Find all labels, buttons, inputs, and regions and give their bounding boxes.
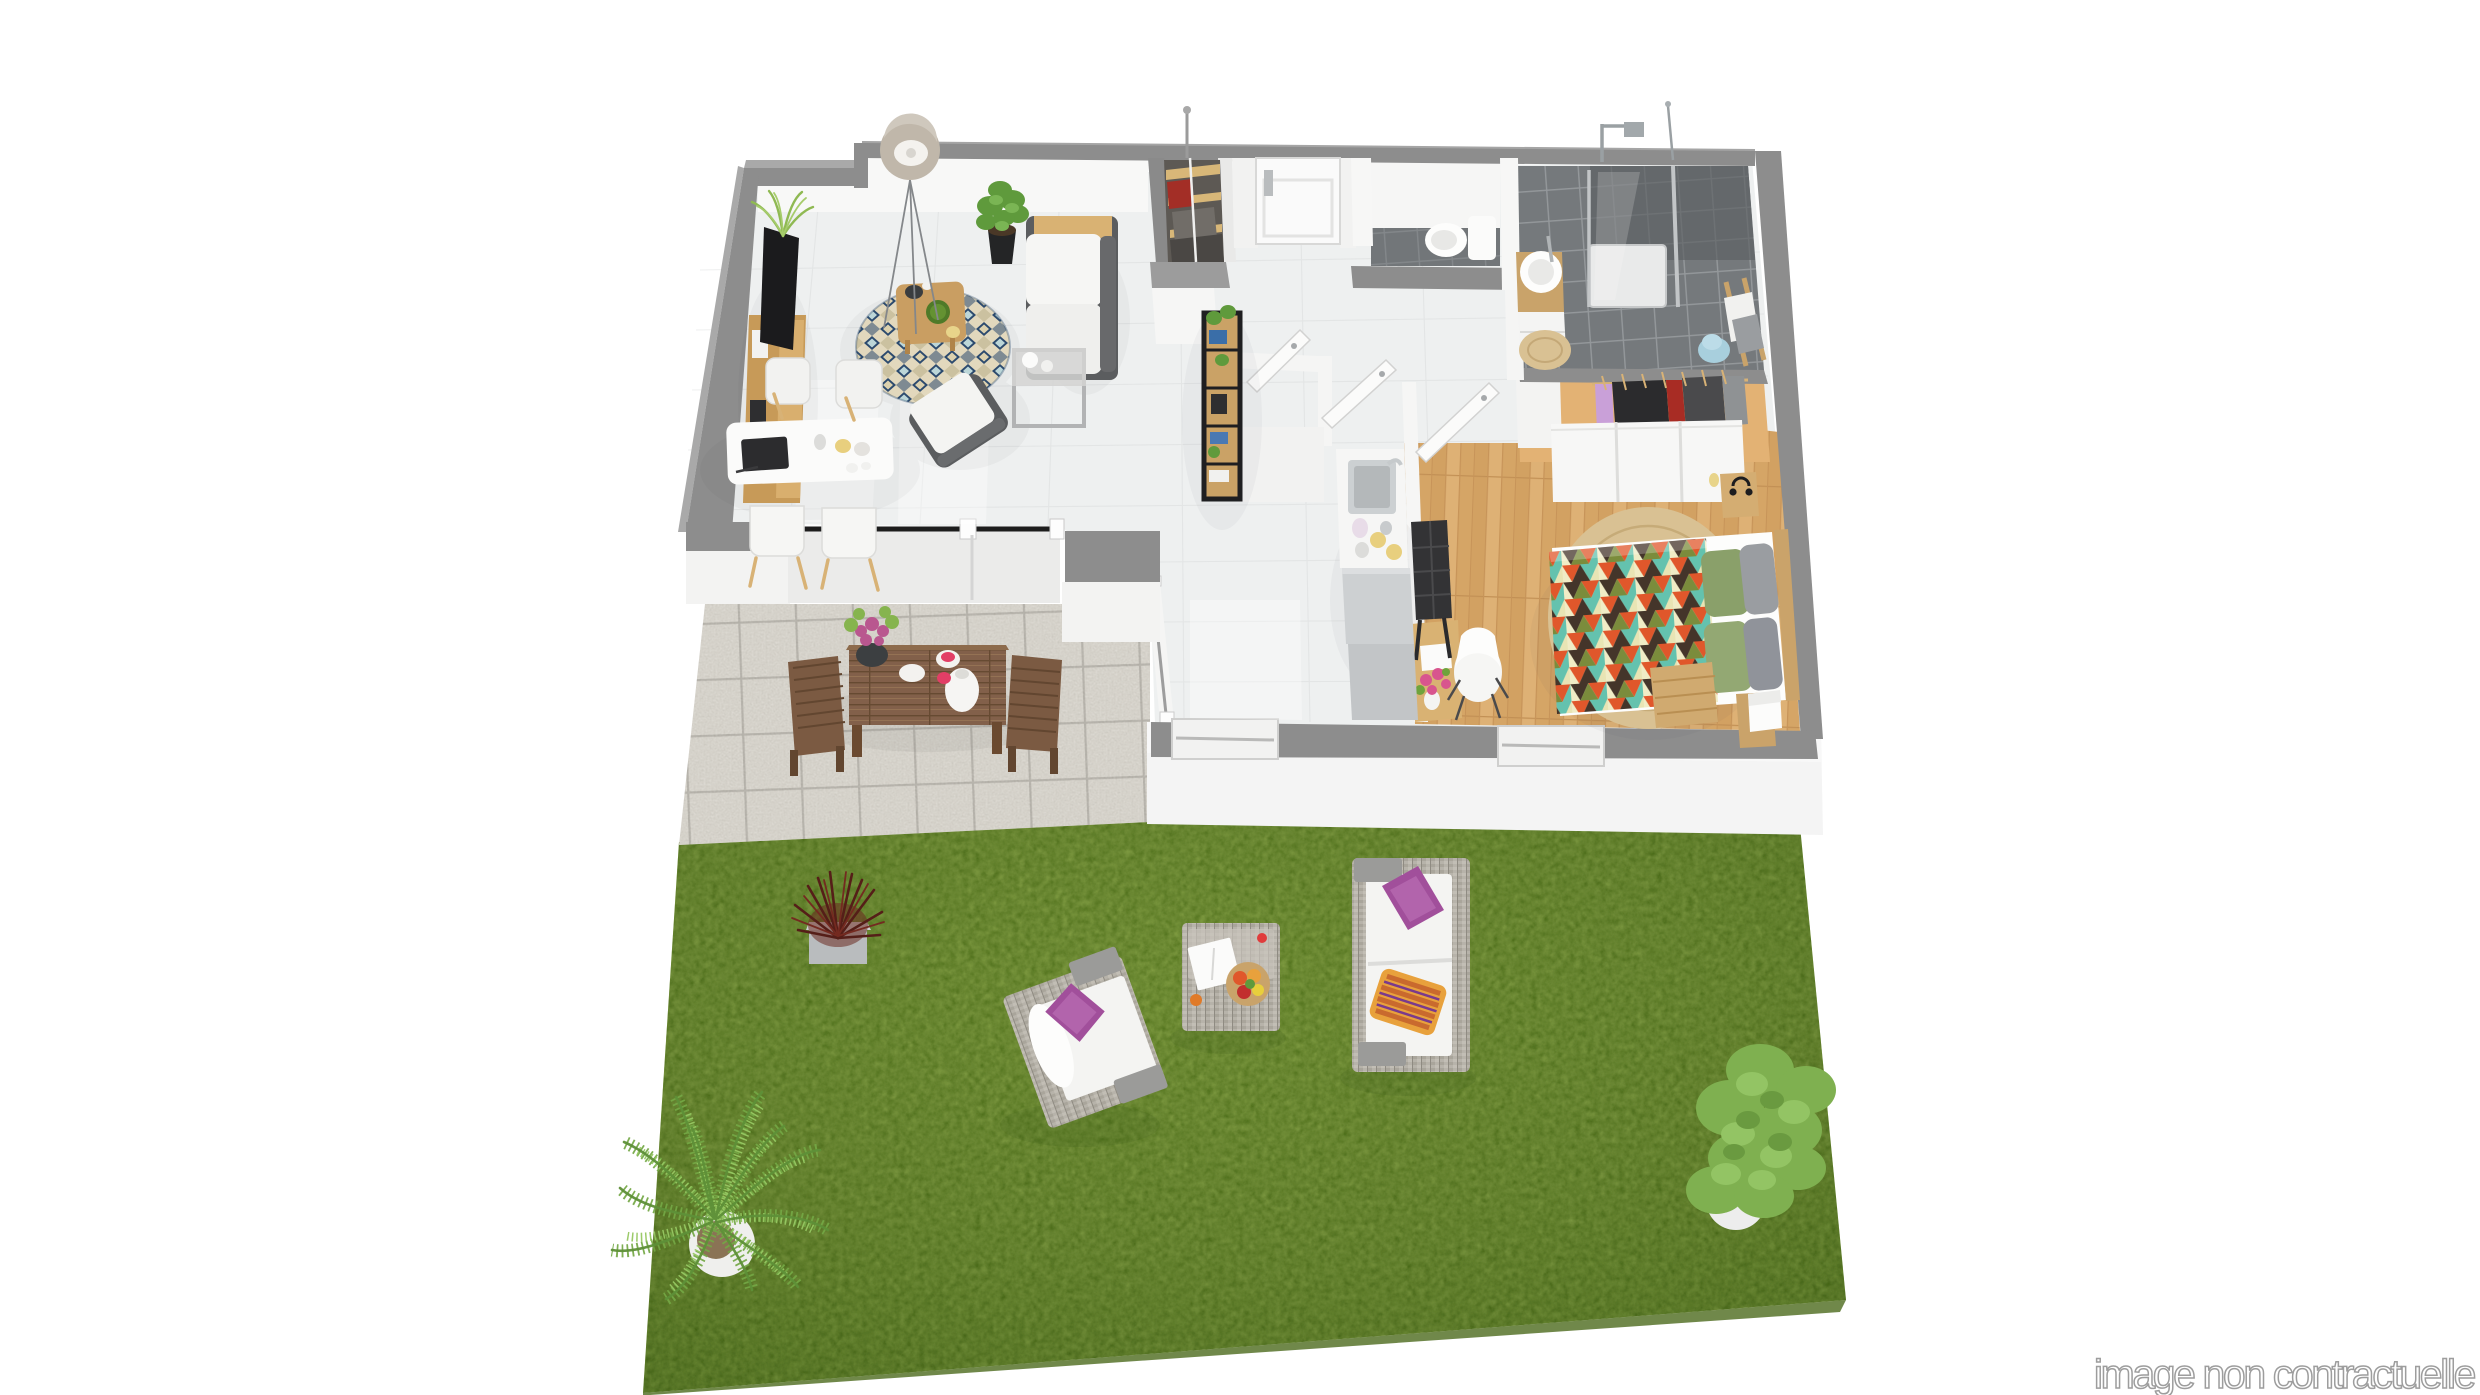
svg-text:image non contractuelle: image non contractuelle bbox=[2094, 1351, 2475, 1395]
